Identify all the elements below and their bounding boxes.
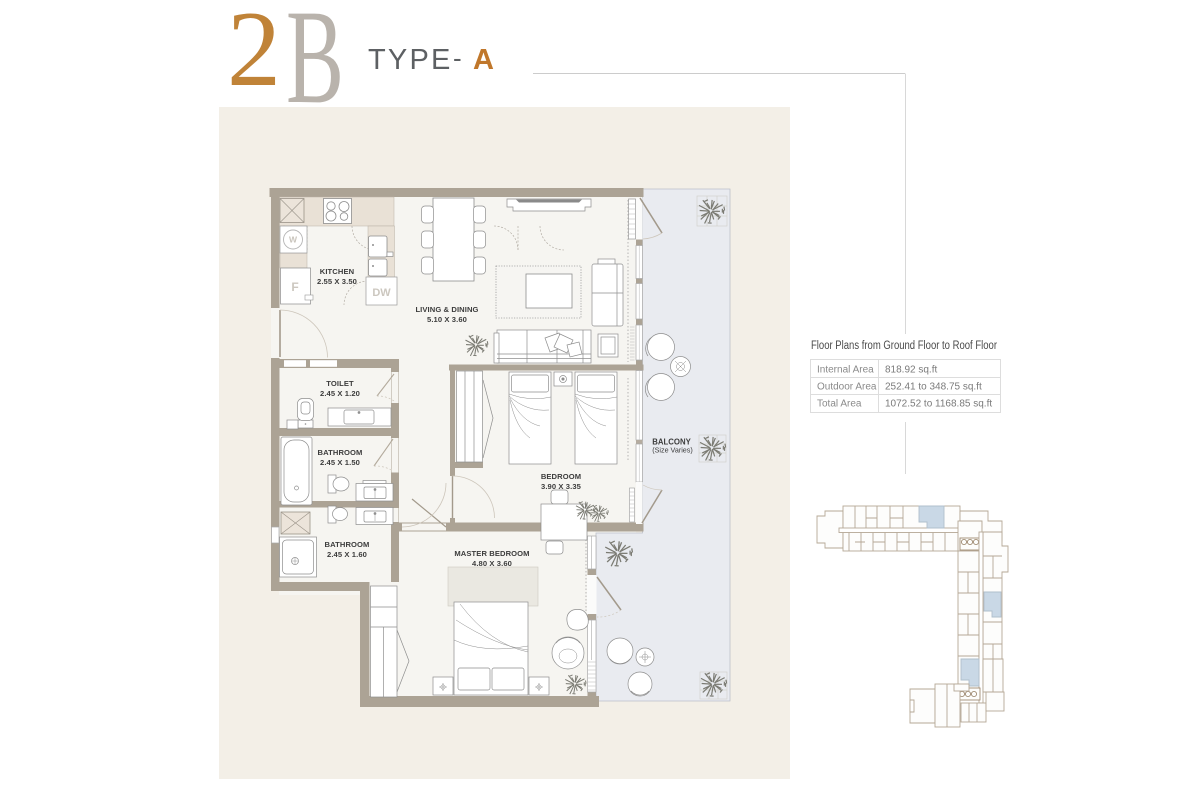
svg-text:BATHROOM: BATHROOM	[325, 540, 370, 549]
svg-text:2.55 X 3.50: 2.55 X 3.50	[317, 277, 357, 286]
svg-text:818.92 sq.ft: 818.92 sq.ft	[885, 365, 937, 376]
svg-text:BATHROOM: BATHROOM	[318, 448, 363, 457]
svg-text:A: A	[473, 44, 494, 76]
svg-text:Floor Plans from Ground Floor: Floor Plans from Ground Floor to Roof Fl…	[811, 340, 997, 352]
svg-text:-: -	[453, 43, 462, 73]
svg-text:1072.52 to 1168.85 sq.ft: 1072.52 to 1168.85 sq.ft	[885, 399, 992, 410]
svg-text:2.45 X 1.60: 2.45 X 1.60	[327, 550, 367, 559]
svg-text:Outdoor Area: Outdoor Area	[817, 382, 877, 393]
svg-text:2.45 X 1.50: 2.45 X 1.50	[320, 458, 360, 467]
svg-text:BEDROOM: BEDROOM	[541, 472, 581, 481]
svg-text:2.45 X 1.20: 2.45 X 1.20	[320, 389, 360, 398]
svg-text:DW: DW	[372, 287, 391, 299]
svg-text:5.10 X 3.60: 5.10 X 3.60	[427, 315, 467, 324]
svg-text:KITCHEN: KITCHEN	[320, 267, 354, 276]
svg-text:4.80 X 3.60: 4.80 X 3.60	[472, 559, 512, 568]
svg-text:2: 2	[227, 0, 281, 109]
svg-text:(Size Varies): (Size Varies)	[652, 446, 693, 455]
svg-text:B: B	[286, 0, 344, 132]
svg-text:LIVING & DINING: LIVING & DINING	[415, 305, 478, 314]
svg-text:F: F	[291, 280, 298, 294]
svg-text:TOILET: TOILET	[326, 379, 354, 388]
svg-text:Internal Area: Internal Area	[817, 365, 874, 376]
svg-text:Total Area: Total Area	[817, 399, 862, 410]
svg-text:252.41 to 348.75 sq.ft: 252.41 to 348.75 sq.ft	[885, 382, 982, 393]
svg-text:MASTER BEDROOM: MASTER BEDROOM	[454, 549, 529, 558]
svg-text:TYPE: TYPE	[368, 44, 453, 76]
svg-text:W: W	[289, 235, 298, 245]
